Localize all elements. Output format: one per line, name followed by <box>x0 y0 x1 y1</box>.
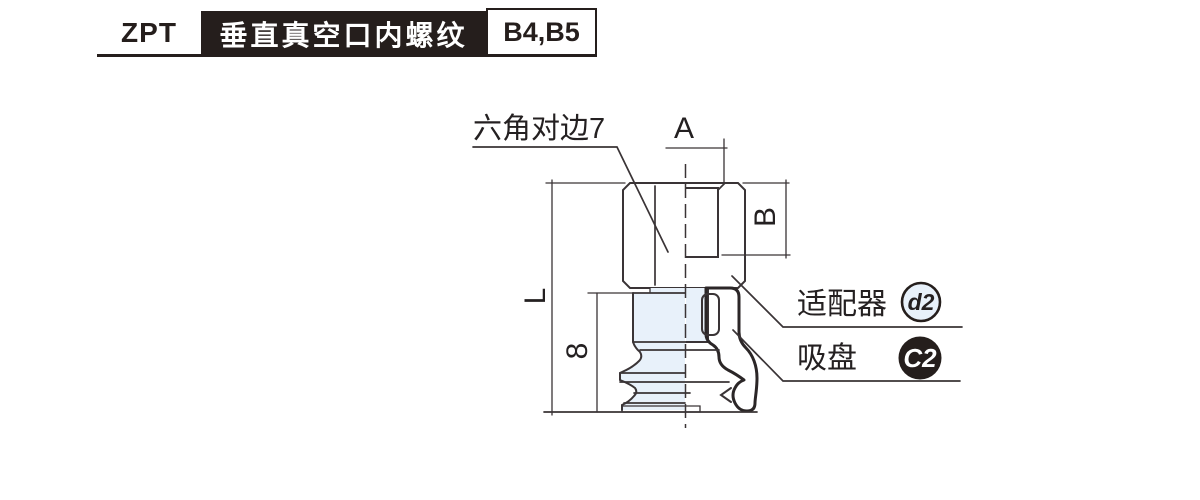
dim-A-label: A <box>674 112 694 145</box>
port-chamfer <box>718 183 725 190</box>
hex-flats-label: 六角对边7 <box>473 112 605 145</box>
adapter-badge-label: d2 <box>908 289 935 315</box>
pad-badge-label: C2 <box>903 343 937 373</box>
section-fold-chevron <box>721 388 731 402</box>
vacuum-port-hole <box>686 188 718 257</box>
technical-drawing: A B L 8 六角对边7 适配器 d2 吸盘 C2 <box>0 0 1200 500</box>
hex-flats-leader <box>473 147 668 252</box>
catalog-page: ZPT 垂直真空口内螺纹 B4,B5 <box>0 0 1200 500</box>
dim-8-label: 8 <box>561 343 594 360</box>
dim-B-label: B <box>749 207 782 227</box>
pad-label: 吸盘 <box>797 342 857 375</box>
adapter-label: 适配器 <box>797 288 887 321</box>
dim-L-label: L <box>519 288 552 305</box>
